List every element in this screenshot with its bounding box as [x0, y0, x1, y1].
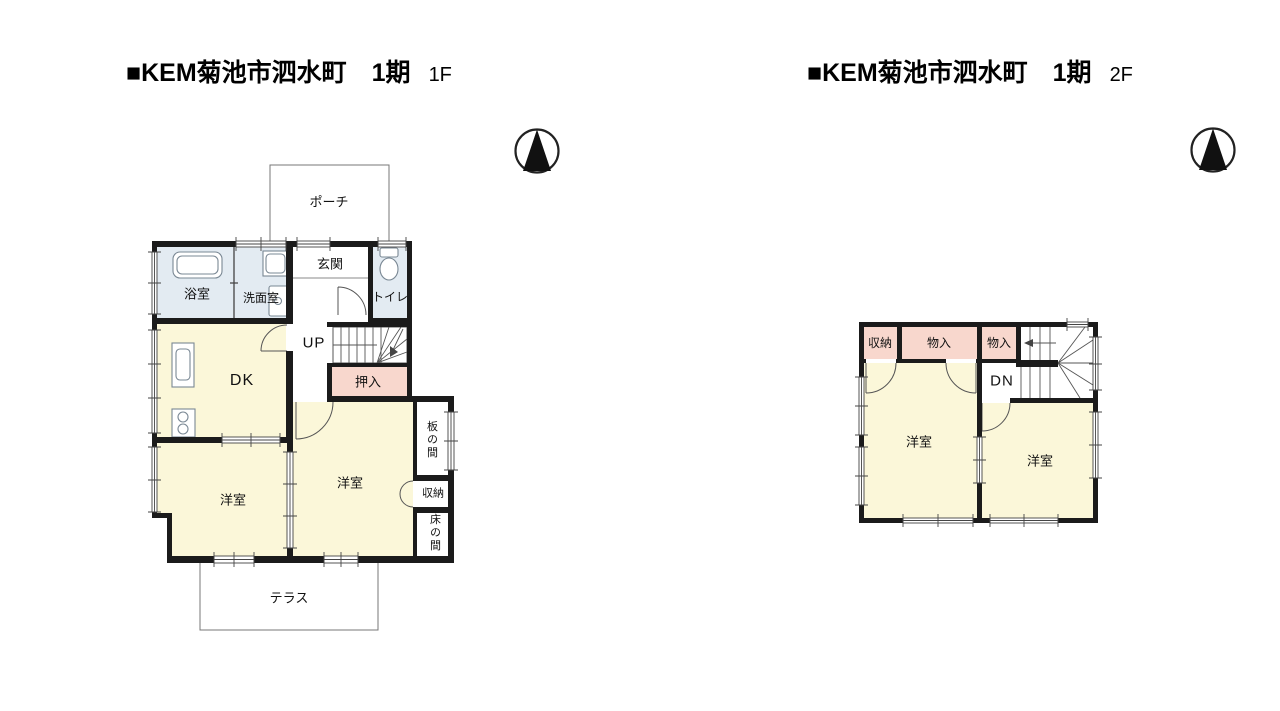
room-label-oshiire: 押入	[355, 376, 381, 389]
room-label-monoire-1: 物入	[927, 337, 951, 349]
room-label-porch: ポーチ	[309, 196, 348, 209]
title-text-1f: ■KEM菊池市泗水町 1期	[126, 59, 411, 87]
stove-icon	[172, 409, 195, 437]
room-label-storage-1f: 収納	[422, 489, 444, 500]
room-label-washroom: 洗面室	[243, 292, 279, 304]
room-label-room-right: 洋室	[337, 477, 363, 490]
room-label-room-left-2f: 洋室	[906, 436, 932, 449]
room-label-storage-2f: 収納	[868, 337, 892, 349]
floorplan-title-1f: ■KEM菊池市泗水町 1期1F	[126, 53, 452, 89]
floor-indicator-1f: 1F	[429, 64, 452, 86]
title-text-2f: ■KEM菊池市泗水町 1期	[807, 59, 1092, 87]
toilet-icon	[380, 248, 398, 280]
floorplan-drawing-1f	[130, 155, 470, 645]
room-label-genkan: 玄関	[317, 258, 343, 271]
floor-indicator-2f: 2F	[1110, 64, 1133, 86]
room-label-toilet: トイレ	[372, 291, 408, 303]
room-label-bath: 浴室	[184, 288, 210, 301]
room-label-monoire-2: 物入	[987, 337, 1011, 349]
bathtub-icon	[173, 252, 222, 278]
floorplan-title-2f: ■KEM菊池市泗水町 1期2F	[807, 53, 1133, 89]
stairs-up	[333, 327, 407, 363]
north-arrow-icon	[1188, 125, 1238, 175]
sink-icon	[263, 251, 288, 276]
floor-plan-page: { "palette": { "wall": "#1b1b1b", "yello…	[0, 0, 1280, 711]
kitchen-sink-icon	[172, 343, 194, 387]
room-label-terrace: テラス	[270, 592, 309, 605]
stairs-label-up: UP	[303, 336, 326, 351]
room-label-itanoma: 板の間	[426, 421, 437, 460]
north-arrow-icon	[512, 126, 562, 176]
room-label-room-right-2f: 洋室	[1027, 455, 1053, 468]
stairs-label-dn: DN	[990, 374, 1014, 389]
room-label-tokonoma: 床の間	[429, 514, 440, 553]
room-label-room-left: 洋室	[220, 494, 246, 507]
room-label-dk: DK	[230, 373, 254, 389]
